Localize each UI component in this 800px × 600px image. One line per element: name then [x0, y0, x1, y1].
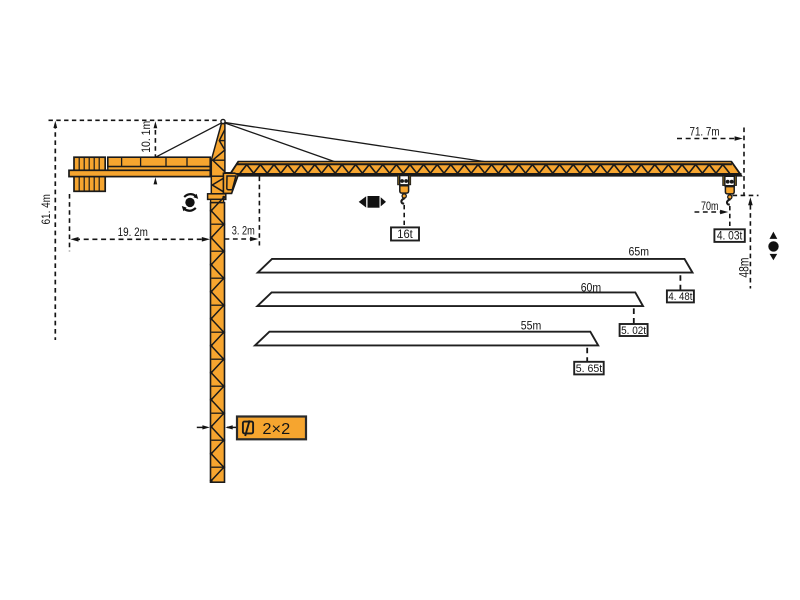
svg-text:65m: 65m [629, 247, 650, 259]
svg-text:4. 48t: 4. 48t [668, 291, 692, 303]
svg-text:16t: 16t [397, 229, 413, 241]
svg-text:2×2: 2×2 [262, 421, 290, 438]
svg-text:70m: 70m [701, 201, 719, 213]
svg-text:5. 65t: 5. 65t [576, 363, 603, 375]
svg-text:61. 4m: 61. 4m [41, 194, 53, 225]
svg-text:10. 1m: 10. 1m [141, 121, 153, 153]
svg-text:55m: 55m [521, 321, 542, 333]
svg-text:4. 03t: 4. 03t [717, 230, 743, 242]
svg-text:71. 7m: 71. 7m [690, 126, 720, 138]
svg-text:5. 02t: 5. 02t [621, 325, 646, 337]
svg-text:60m: 60m [581, 283, 602, 295]
svg-text:3. 2m: 3. 2m [232, 225, 255, 237]
svg-text:19. 2m: 19. 2m [118, 227, 148, 239]
svg-text:48m: 48m [737, 258, 752, 278]
